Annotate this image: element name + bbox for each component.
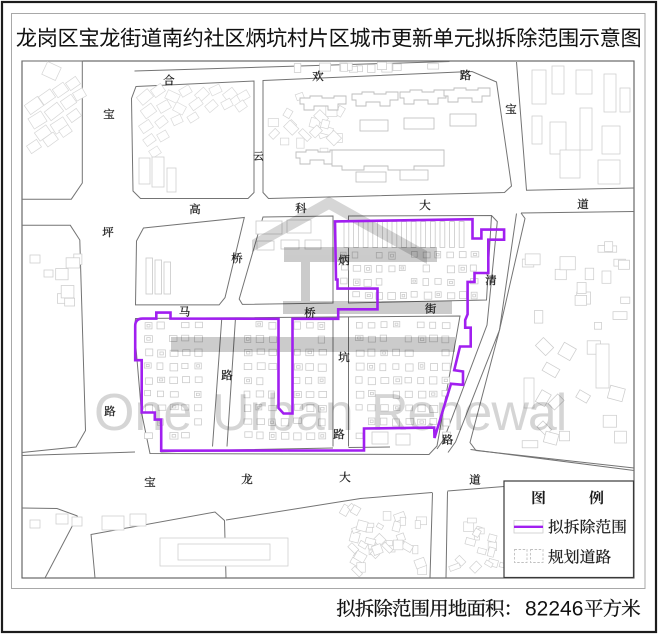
svg-text:Renewal: Renewal bbox=[371, 384, 566, 442]
svg-text:82246: 82246 bbox=[525, 598, 583, 621]
